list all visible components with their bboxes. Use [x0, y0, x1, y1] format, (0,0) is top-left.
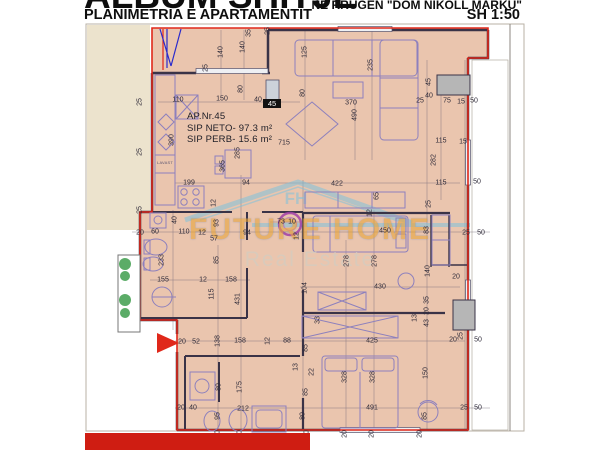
common-area: SIP PERB- 15.6 m²	[187, 134, 272, 146]
balcony-plants	[118, 255, 140, 332]
watermark-tagline: Real Estate	[150, 248, 470, 272]
dishwasher-label: LAVAST	[154, 160, 176, 165]
apartment-info: AP.Nr.45 SIP NETO- 97.3 m² SIP PERB- 15.…	[187, 111, 272, 146]
bottom-red-bar	[85, 433, 310, 450]
net-area: SIP NETO- 97.3 m²	[187, 123, 272, 135]
watermark-brand: FUTURE HOME	[140, 213, 480, 247]
apartment-number: AP.Nr.45	[187, 111, 272, 123]
unit-marker-badge: 45	[263, 99, 281, 108]
watermark-initials: FH	[285, 189, 308, 208]
